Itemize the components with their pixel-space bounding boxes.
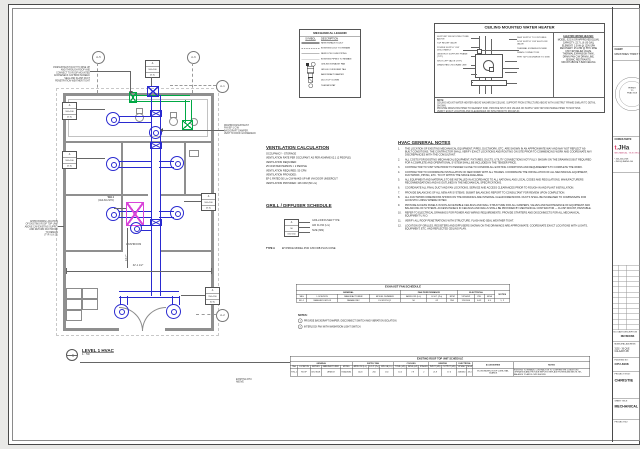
dimension-tick bbox=[211, 268, 212, 274]
file-number: CPU-8108 bbox=[615, 363, 629, 367]
type-desc: EH PRICE MODEL PCD C/W FDB PLUS CONE bbox=[282, 247, 336, 250]
grille-tag: A100×10025 l/s bbox=[145, 60, 160, 78]
roof-cap-symbol bbox=[147, 86, 159, 97]
tag-label: AIR FLOW (L/s) bbox=[312, 224, 382, 227]
grille-tag: A100×10025 l/s bbox=[62, 102, 77, 120]
callout-text: POWER SUPPLY C/W DISCONNECT bbox=[437, 46, 471, 51]
drain-pan bbox=[471, 80, 507, 86]
branch-duct bbox=[119, 291, 179, 298]
leader-line bbox=[471, 47, 479, 48]
legend-col-symbol: SYMBOL bbox=[300, 38, 321, 41]
dimension-tick bbox=[66, 268, 67, 274]
grid-bubble: A-1 bbox=[216, 80, 229, 93]
legend-symbol-icon bbox=[300, 78, 321, 83]
sink-fixture bbox=[189, 150, 199, 157]
project-number-label: PROJECT NO: bbox=[615, 421, 628, 423]
legend-label: DUCT UP / DOWN bbox=[321, 79, 360, 81]
diffuser-icon bbox=[106, 207, 120, 221]
callout-text: THERMAL EXPANSION TANK bbox=[517, 47, 552, 50]
sheet-title: MECHANICAL bbox=[615, 405, 639, 409]
table-cell: CRU 8108 bbox=[310, 368, 321, 376]
schedule-note: 1 PROVIDE BACKDRAFT DAMPER, DISCONNECT S… bbox=[298, 319, 508, 324]
leader-arrow bbox=[129, 91, 133, 94]
table-cell: ROOF bbox=[298, 368, 310, 376]
table-cell: KGA036S4 bbox=[340, 368, 352, 376]
calc-line: VENTILATION REQUIRED: bbox=[266, 161, 394, 164]
calc-line: OCCUPANCY - STORAGE bbox=[266, 153, 394, 156]
type-row: TYPE A EH PRICE MODEL PCD C/W FDB PLUS C… bbox=[266, 247, 394, 253]
leader-line bbox=[90, 71, 130, 72]
legend-col-desc: DESCRIPTION bbox=[321, 38, 360, 41]
green-duct-register bbox=[182, 120, 193, 130]
note-line: (TYP. U.N.O.) bbox=[8, 234, 58, 237]
grille-tag: A100×10025 l/s bbox=[62, 151, 77, 169]
spec-title: ELECTRIC WATER HEATER: bbox=[555, 35, 602, 38]
washroom-label: WASHROOM bbox=[126, 243, 166, 249]
leader-line bbox=[184, 201, 201, 202]
general-note: 2. ALL COSTS FOR EXISTING MECHANICAL EQU… bbox=[398, 158, 592, 164]
toilet-fixture bbox=[169, 117, 178, 126]
table-cell: 17.6 bbox=[442, 368, 457, 376]
table-cell: EXISTING TO REMAIN. CONTRACTOR TO CONFIR… bbox=[513, 368, 590, 376]
note-line: VENT TO ROOF GOOSENECK bbox=[224, 132, 270, 135]
hvac-general-notes: HVAC GENERAL NOTES 1. THE LOCATION OF EX… bbox=[398, 140, 592, 264]
callout-text: T&P RELIEF VALVE bbox=[437, 42, 471, 45]
plan-note-mid-left: APPROXIMATE LOCATIONOF EXISTING ROOF TOP… bbox=[8, 220, 58, 252]
general-note: 9. PROVIDE ACCESS PANELS IN NON-ACCESSIB… bbox=[398, 204, 592, 210]
general-note: 4. CONTRACTOR TO COORDINATE INSTALLATION… bbox=[398, 171, 592, 177]
leader-line bbox=[471, 56, 475, 57]
wall-segment bbox=[121, 141, 123, 252]
table-cell: WASHROOM 103 bbox=[307, 298, 338, 302]
plan-note-top-left: 150Ø EXHAUST DUCT TO RISE UPAND THROUGH … bbox=[26, 66, 90, 98]
project-title-label: PROJECT TITLE: bbox=[615, 373, 631, 375]
diffuser-icon bbox=[170, 206, 184, 220]
legend-symbol-icon bbox=[300, 48, 321, 49]
table-cell: 250 bbox=[368, 368, 380, 376]
table-cell: 50 bbox=[400, 298, 427, 302]
damper-symbol bbox=[150, 142, 162, 149]
cone-diffuser-icon bbox=[114, 304, 129, 319]
calc-line: VENTILATION PROVIDED: bbox=[266, 173, 394, 176]
municipal-label: MUNICIPAL ADDRESS: bbox=[615, 343, 636, 345]
calc-line: VENTILATION PROVIDED: 106 CFM (50 L/s) bbox=[266, 182, 394, 185]
type-name: TYPE A bbox=[266, 247, 275, 250]
toilet-fixture bbox=[170, 112, 177, 118]
leader-line bbox=[114, 208, 126, 209]
callout-text: DRAIN PAN C/W DRAIN LINE bbox=[437, 63, 471, 66]
client-name: MINISTRIES THRIFT S bbox=[615, 53, 640, 56]
water-heater-detail: CEILING MOUNTED WATER HEATER SUPPORT FRO… bbox=[434, 23, 605, 113]
note-line: ABOVE bbox=[236, 381, 270, 384]
section-title: VENTILATION CALCULATION bbox=[266, 145, 394, 150]
grid-line bbox=[170, 85, 216, 86]
municipal-address: 3102 - 36 QUECALGARY AB bbox=[615, 348, 640, 353]
leader-line bbox=[505, 72, 517, 73]
grille-diffuser-schedule: GRILL / DIFFUSER SCHEDULE A 50 150×150 G… bbox=[266, 203, 394, 259]
wall-segment bbox=[160, 250, 214, 252]
table-cell: RTU-1 bbox=[290, 368, 298, 376]
table-cell: EF-1 bbox=[296, 298, 307, 302]
calc-line: VENTILATION RATE PER OCCUPANT: AS PER AS… bbox=[266, 157, 394, 160]
leader-line bbox=[471, 74, 477, 75]
legend-row: THERMOSTAT bbox=[300, 83, 360, 88]
grid-bubble: A-2 bbox=[216, 309, 229, 322]
valve-symbol bbox=[477, 49, 482, 54]
wall-segment bbox=[63, 141, 214, 143]
legend-label: THERMOSTAT bbox=[321, 84, 360, 86]
shelving bbox=[66, 288, 82, 299]
table-cell: 10.5 bbox=[394, 368, 407, 376]
grille-tag: A100×10025 l/s bbox=[201, 193, 216, 211]
general-note: 1. THE LOCATION OF EXISTING MECHANICAL E… bbox=[398, 148, 592, 157]
damper-symbol bbox=[150, 219, 162, 226]
detail-note: NOTE: CEILING MOUNT WATER HEATER ABOVE W… bbox=[437, 99, 602, 126]
consultants-label: CONSULTANTS: bbox=[615, 138, 632, 141]
notes-label: NOTES: bbox=[298, 314, 508, 317]
toilet-fixture bbox=[136, 108, 143, 114]
legend-label: NEW DCW / DHW PIPING bbox=[321, 53, 360, 55]
diffuser-icon bbox=[106, 157, 120, 171]
legend-label: GRILLE / DIFFUSER TAG bbox=[321, 68, 360, 70]
exhaust-fan-schedule: EXHAUST FAN SCHEDULE GENERAL FAN PERFORM… bbox=[296, 284, 510, 314]
general-note: 3. CONTRACTOR TO VISIT SITE PRIOR TO TEN… bbox=[398, 166, 592, 169]
rtu-schedule: EXISTING ROOF TOP UNIT SCHEDULE GENERAL … bbox=[290, 356, 590, 392]
detail-title: CEILING MOUNTED WATER HEATER bbox=[435, 25, 604, 34]
leader-line bbox=[151, 77, 152, 86]
leader-line bbox=[298, 227, 310, 228]
table-cell: 950 bbox=[447, 298, 458, 302]
table-row: EF-1WASHROOM 103PANASONICFV-0511VQ150629… bbox=[296, 298, 510, 302]
table-cell: 21.9 bbox=[429, 368, 442, 376]
table-cell: 208/3/60 bbox=[457, 368, 467, 376]
general-note: 7. PROVIDE BALANCING OF ALL NEW AIR SYST… bbox=[398, 191, 592, 194]
section-title: HVAC GENERAL NOTES bbox=[398, 140, 592, 145]
leader-line bbox=[298, 222, 310, 223]
leader-line bbox=[76, 158, 105, 159]
leader-line bbox=[505, 61, 517, 62]
wall-segment bbox=[63, 328, 119, 331]
water-heater-label: WH-1 (CEILING MTD) bbox=[80, 196, 114, 207]
wall-segment bbox=[165, 328, 214, 331]
leader-line bbox=[163, 130, 224, 131]
diffuser-icon bbox=[170, 156, 184, 170]
revisions-caption: REVISIONS bbox=[613, 335, 640, 338]
plan-note-mid-right: WASHROOM EXHAUSTFAN EF-1 C/WBACKDRAFT DA… bbox=[224, 124, 270, 146]
tag-example: A 50 150×150 bbox=[284, 219, 299, 237]
dimension-label: 14'-7″ bbox=[125, 241, 131, 261]
branch-duct bbox=[119, 116, 151, 123]
plan-note-bottom: EXISTING RTUABOVE bbox=[236, 378, 270, 389]
diffuser-icon bbox=[106, 112, 120, 126]
revision-header: NO. DATE DESCRIPTION bbox=[614, 331, 638, 333]
table-cell: 0.5 bbox=[484, 298, 495, 302]
ventilation-calculation: VENTILATION CALCULATION OCCUPANCY - STOR… bbox=[266, 145, 394, 201]
general-note: 10. REFER TO ELECTRICAL DRAWINGS FOR POW… bbox=[398, 212, 592, 218]
detail-right-callouts: DHW SUPPLY TO FIXTURESDCW SUPPLY C/W SHU… bbox=[517, 36, 552, 83]
calc-line: EF-1 RATED 50 L/s C/W MAKE-UP AIR VIA DO… bbox=[266, 178, 394, 181]
leader-line bbox=[58, 226, 64, 227]
note-line: PROVIDE DRAIN PAN PIPED TO NEAREST SINK.… bbox=[437, 107, 602, 110]
leader-line bbox=[471, 65, 475, 66]
logo-text: JHa bbox=[618, 144, 629, 151]
damper-symbol bbox=[150, 110, 162, 117]
leader-line bbox=[507, 83, 517, 84]
table-cell: 62 bbox=[427, 298, 447, 302]
general-note: 8. ALL DUCTWORK DIMENSIONS SHOWN ON THE … bbox=[398, 196, 592, 202]
legend-symbol-icon bbox=[300, 43, 321, 44]
table-cell: LENNOX bbox=[321, 368, 340, 376]
section-title: GRILL / DIFFUSER SCHEDULE bbox=[266, 203, 394, 208]
table-cell: 2 bbox=[419, 368, 429, 376]
callout-divider bbox=[66, 355, 78, 356]
legend-label: EXISTING DUCT TO REMAIN bbox=[321, 47, 360, 49]
general-note: 11. VERIFY ALL ROOF PENETRATIONS WITH ST… bbox=[398, 219, 592, 222]
legend-symbol-icon bbox=[300, 72, 321, 77]
wh-fan-icon bbox=[130, 222, 142, 234]
circled-number: 2 bbox=[298, 325, 303, 330]
legend-label: CEILING EXHAUST FAN bbox=[321, 63, 360, 65]
callout-text: UNISTRUT SUPPORT FRAME (TYP.) bbox=[437, 53, 471, 58]
table-cell: 7.9 bbox=[407, 368, 419, 376]
legend-symbol-icon bbox=[300, 59, 321, 60]
tag-label: GRILL/DIFFUSER TYPE bbox=[312, 219, 382, 222]
general-note: 6. COORDINATE ALL FINAL DUCT AND FAN LOC… bbox=[398, 186, 592, 189]
drawing-sheet-viewport: A-5 A-6 A-1 A-2 bbox=[0, 0, 640, 449]
calc-line: 25 CFM PER PERSON × 2 PEOPLE bbox=[266, 165, 394, 168]
cone-diffuser-icon bbox=[166, 304, 181, 319]
legend-rows: NEW EXHAUST DUCT EXISTING DUCT TO REMAIN… bbox=[300, 41, 360, 89]
detail-spec-column: ELECTRIC WATER HEATER: MODEL: EJC-6 OR A… bbox=[555, 35, 602, 93]
table-cell: ECONOMIZER, ROOF CURB, HAIL GUARDS bbox=[473, 368, 514, 376]
leader-line bbox=[509, 39, 517, 40]
table-cell: 120/1/60 bbox=[458, 298, 475, 302]
grid-bubble: A-6 bbox=[187, 51, 200, 64]
legend-title: MECHANICAL LEGEND bbox=[300, 32, 360, 36]
leader-line bbox=[130, 71, 131, 91]
general-note: 12. LOCATION OF GRILLES, REGISTERS AND D… bbox=[398, 224, 592, 230]
detail-left-callouts: SUPPORT FROM STRUCTURE ABOVET&P RELIEF V… bbox=[437, 35, 471, 100]
tag-label: SIZE (MM) bbox=[312, 229, 382, 232]
seal-text: PERMITTOPRACTICE bbox=[619, 87, 640, 94]
table-cell: FV-0511VQ1 bbox=[369, 298, 400, 302]
calc-line: VENTILATION REQUIRED: 50 CFM bbox=[266, 169, 394, 172]
branch-duct bbox=[141, 225, 151, 231]
table-cell: PANASONIC bbox=[337, 298, 369, 302]
leader-line bbox=[471, 82, 473, 83]
note-line: CEILING MOUNT WATER HEATER ABOVE WASHROO… bbox=[437, 101, 602, 106]
callout-text: PIPE T&P DISCHARGE TO SINK bbox=[517, 55, 552, 58]
file-number-label: FILE/DWG NO: bbox=[615, 359, 629, 361]
table-row: RTU-1ROOFCRU 8108LENNOXKGA036S4142025015… bbox=[290, 368, 590, 376]
leader-line bbox=[471, 38, 479, 39]
valve-symbol bbox=[489, 67, 494, 72]
wall-segment bbox=[184, 141, 186, 196]
grille-tag: A150×15050 l/s bbox=[205, 287, 220, 305]
grid-bubble: A-5 bbox=[92, 51, 105, 64]
leader-line bbox=[298, 232, 310, 233]
circled-number: 1 bbox=[298, 319, 303, 324]
table-cell: 150 bbox=[380, 368, 394, 376]
legend-symbol-icon bbox=[300, 53, 321, 54]
logo-subtitle: MECHANICAL · ELECTRICAL bbox=[615, 152, 640, 154]
general-note: 5. ALL EQUIPMENT AND MATERIALS TO BE INS… bbox=[398, 179, 592, 185]
branch-duct bbox=[119, 161, 151, 168]
dimension-label: 32'-1 1/2″ bbox=[118, 264, 158, 270]
legend-label: NEW EXHAUST DUCT bbox=[321, 42, 360, 44]
callout-text: SUPPORT FROM STRUCTURE ABOVE bbox=[437, 35, 471, 40]
legend-label: BACKDRAFT DAMPER bbox=[321, 74, 360, 76]
shelving bbox=[66, 310, 82, 321]
note-line: PENETRATION WEATHER TIGHT bbox=[26, 80, 90, 83]
mechanical-legend: MECHANICAL LEGEND SYMBOL DESCRIPTION NEW… bbox=[299, 29, 361, 98]
callout-text: SHUT-OFF VALVE (TYP.) bbox=[437, 59, 471, 62]
grid-line bbox=[97, 63, 98, 93]
table-cell: 1, 2 bbox=[495, 298, 510, 302]
leader-line bbox=[76, 109, 105, 110]
legend-symbol-icon bbox=[300, 83, 321, 88]
fan-schedule-notes: NOTES: 1 PROVIDE BACKDRAFT DAMPER, DISCO… bbox=[298, 314, 508, 336]
shelving bbox=[66, 299, 82, 310]
legend-label: EXISTING PIPING TO REMAIN bbox=[321, 58, 360, 60]
dimension-line bbox=[66, 271, 211, 272]
tag-labels: GRILL/DIFFUSER TYPEAIR FLOW (L/s)SIZE (M… bbox=[312, 219, 382, 249]
contact-lines: • 403-455-0708• INFO@JHENG.CA bbox=[615, 158, 640, 163]
sheet-title-label: SHEET TITLE: bbox=[615, 400, 628, 402]
table-cell: 0.02 bbox=[474, 298, 484, 302]
spec-line: MOUNT ABOVE T-BAR CEILING bbox=[555, 61, 602, 64]
green-exhaust-duct bbox=[185, 100, 192, 122]
leader-line bbox=[181, 295, 205, 296]
leader-line bbox=[509, 50, 517, 51]
shelving bbox=[82, 299, 98, 310]
leader-arrow bbox=[160, 128, 163, 132]
shelving bbox=[82, 288, 98, 299]
callout-text: DRAIN CONNECTION bbox=[517, 51, 552, 54]
wall-segment bbox=[63, 250, 123, 252]
client-label: CLIENT: bbox=[615, 48, 624, 51]
title-block: CLIENT: MINISTRIES THRIFT S PERMITTOPRAC… bbox=[612, 7, 640, 442]
callout-text: DHW SUPPLY TO FIXTURES bbox=[517, 36, 552, 39]
grid-line bbox=[192, 63, 193, 93]
callout-text: DCW SUPPLY C/W SHUT-OFF VALVE bbox=[517, 40, 552, 45]
table-cell: 1420 bbox=[352, 368, 368, 376]
project-title: CHRISTIE bbox=[615, 378, 634, 383]
group-header: NOTES bbox=[495, 290, 510, 298]
schedule-note: 2 INTERLOCK FAN WITH WASHROOM LIGHT SWIT… bbox=[298, 325, 508, 330]
